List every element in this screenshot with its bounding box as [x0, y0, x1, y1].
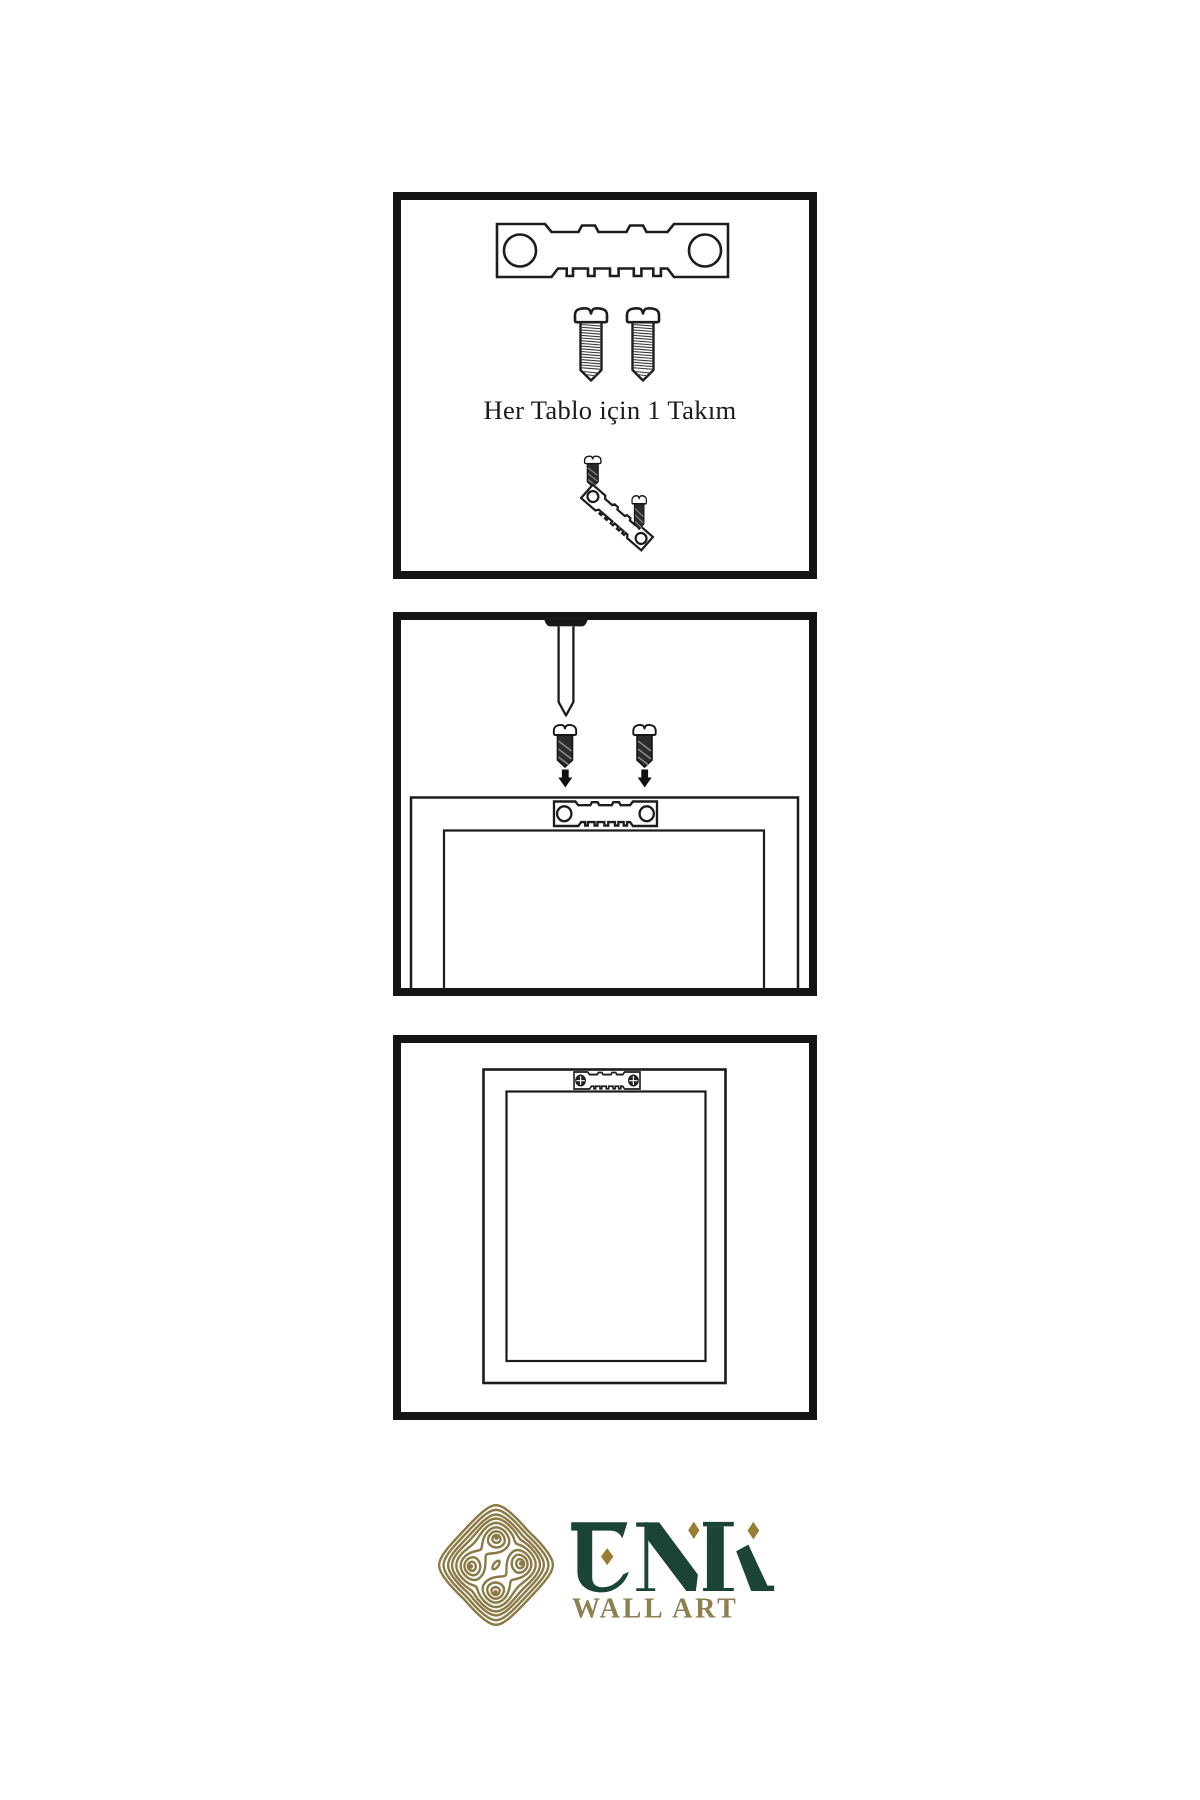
svg-text:WALL ART: WALL ART [572, 1594, 739, 1625]
svg-text:Her Tablo için 1 Takım: Her Tablo için 1 Takım [483, 395, 736, 425]
